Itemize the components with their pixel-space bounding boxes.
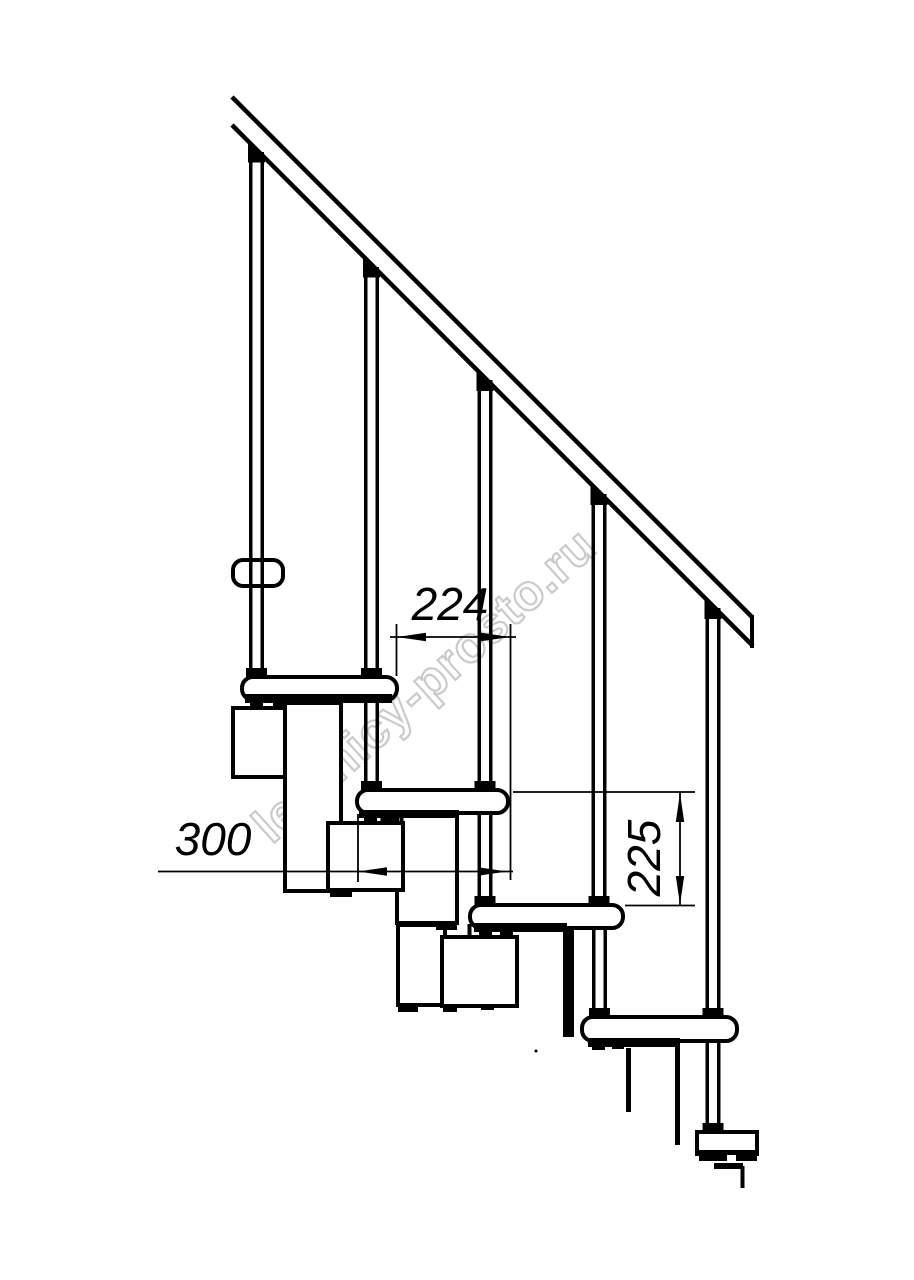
floor-step-line xyxy=(714,1163,743,1169)
column-2-foot xyxy=(436,921,457,930)
tread-1-underside xyxy=(245,694,392,703)
column-2b-foot xyxy=(398,1004,418,1012)
module-box-1 xyxy=(328,823,403,890)
module-edge-under-tread-3 xyxy=(563,929,574,1037)
baluster-1 xyxy=(251,152,263,672)
dim-label-300: 300 xyxy=(175,813,252,865)
tube-under-tread-4 xyxy=(707,1040,719,1128)
arrowhead-down xyxy=(676,876,684,905)
column-under-tread-2 xyxy=(397,813,457,923)
wall-bracket xyxy=(233,560,283,586)
dim-label-225: 225 xyxy=(618,819,670,897)
module-box-2-foot xyxy=(443,1004,457,1012)
staircase-drawing: lestnicy-prosto.ru xyxy=(0,0,914,1280)
module-box-1-foot xyxy=(330,888,352,897)
flange-tread-3-a xyxy=(475,896,496,906)
baluster-2 xyxy=(366,267,378,672)
dim-label-224: 224 xyxy=(411,578,489,630)
floor-step-drop xyxy=(741,1166,745,1188)
flange-foot xyxy=(703,1123,724,1133)
tube-under-tread-2 xyxy=(479,811,491,899)
flange-tread-4-a xyxy=(589,1008,610,1018)
tread-4 xyxy=(582,1017,737,1041)
module-box-2 xyxy=(442,937,517,1006)
speck xyxy=(535,1050,538,1053)
drawing-svg: lestnicy-prosto.ru xyxy=(0,0,914,1280)
column-under-tread-2-lower xyxy=(398,925,445,1005)
baluster-5 xyxy=(707,608,719,1012)
tread-2 xyxy=(357,790,508,813)
arrowhead-up xyxy=(676,793,684,822)
wall-support-box xyxy=(233,708,290,777)
tube-under-tread-3 xyxy=(594,926,606,1013)
arrowhead-left xyxy=(397,633,426,641)
flange-tread-2-a xyxy=(361,781,382,791)
